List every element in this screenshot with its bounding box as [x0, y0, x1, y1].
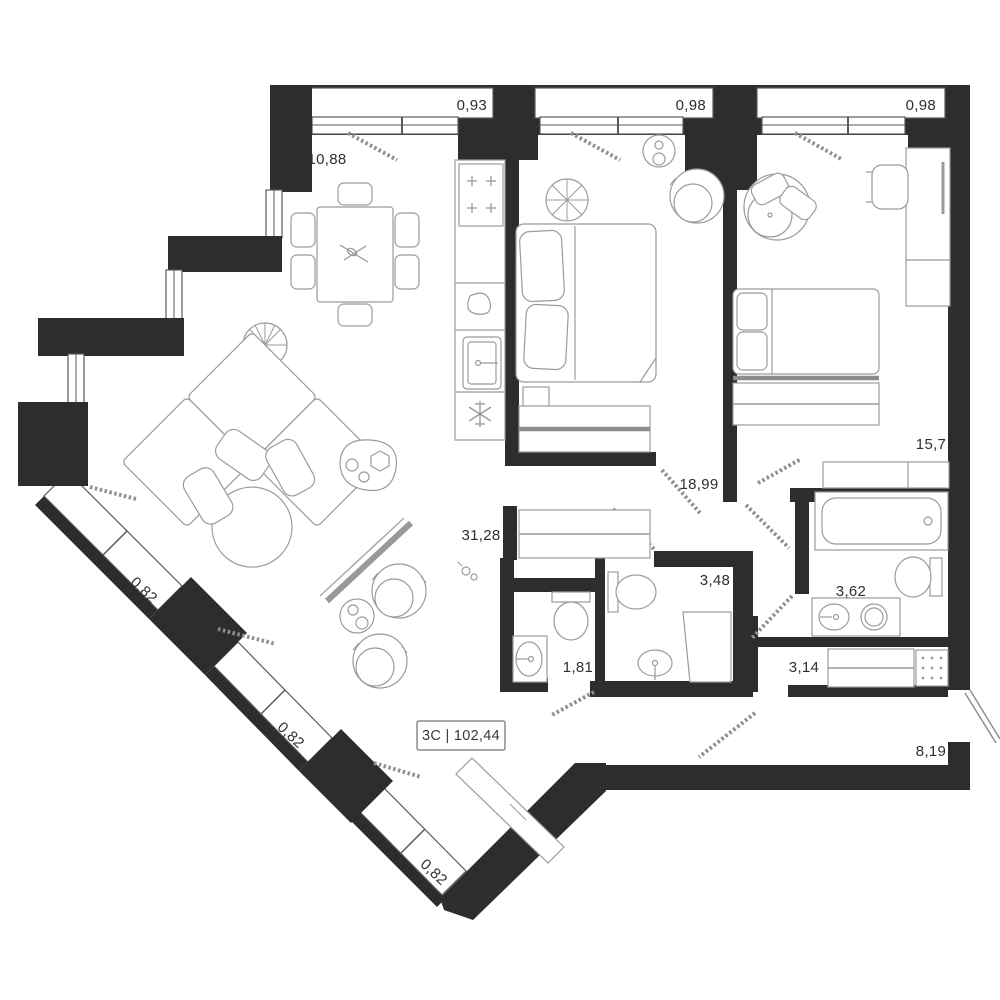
pillow — [523, 304, 568, 370]
window-top-2 — [540, 117, 683, 134]
desk-chair — [872, 165, 908, 209]
wall-pier — [458, 130, 538, 160]
side-table — [643, 135, 675, 167]
pillow — [737, 293, 767, 330]
shoe-cabinet — [916, 650, 948, 686]
wall-diagonal-v — [440, 763, 606, 920]
wall-bedroom1-bottom — [505, 452, 656, 466]
door-swing-bedroom2-b — [758, 459, 801, 483]
door-swing-balcony-top-mid — [571, 133, 620, 160]
desk — [866, 148, 950, 306]
balcony-label-top-left: 0,93 — [457, 97, 487, 114]
lounge-chair — [353, 634, 407, 688]
wall-bottom — [575, 765, 970, 790]
coffee-table — [340, 440, 396, 491]
wall-corner-block — [18, 402, 88, 486]
chair — [395, 213, 419, 247]
glasses-decor — [458, 562, 477, 580]
toilet — [895, 557, 942, 597]
door-swing-balcony-diag-1 — [90, 487, 136, 499]
double-sink — [812, 598, 900, 636]
pillow — [737, 332, 767, 370]
wall-wc-left — [500, 558, 514, 692]
chair — [291, 213, 315, 247]
wardrobe — [733, 383, 879, 425]
room-label-bath-large: 3,62 — [836, 583, 866, 600]
round-chair — [670, 169, 724, 223]
shower — [683, 612, 731, 682]
wall-wc-top — [513, 578, 600, 592]
entry-door — [965, 690, 1000, 743]
window-top-3 — [762, 117, 905, 134]
chair — [338, 183, 372, 205]
room-label-closet-room: 3,14 — [789, 659, 819, 676]
dining-table — [291, 183, 419, 326]
wall-bath-small-left — [595, 551, 605, 690]
kitchen-sink — [463, 337, 501, 389]
wall-closet-left — [740, 616, 758, 692]
furniture — [122, 135, 950, 688]
kitchen-counter — [455, 160, 505, 440]
window-left-1 — [266, 190, 282, 238]
toilet — [552, 592, 590, 640]
pillow — [519, 230, 565, 302]
door-swing-balcony-top-right — [795, 133, 843, 160]
stove-icon — [459, 164, 503, 226]
area-tag: 3С | 102,44 — [417, 721, 505, 750]
room-label-wc: 1,81 — [563, 659, 593, 676]
room-label-corridor: 18,99 — [679, 476, 718, 493]
wall-bath-large-bottom — [756, 637, 948, 647]
wardrobe — [828, 649, 914, 687]
plant-icon — [546, 179, 588, 221]
chair — [395, 255, 419, 289]
chair — [291, 255, 315, 289]
shaft — [823, 462, 949, 488]
bathtub — [815, 492, 948, 550]
wall-bath-large-left — [795, 502, 809, 594]
floor-plan: 10,88 31,28 18,99 15,7 3,48 3,62 1,81 3,… — [0, 0, 1000, 1000]
floor-plan-svg: 10,88 31,28 18,99 15,7 3,48 3,62 1,81 3,… — [0, 0, 1000, 1000]
room-label-bedroom-right: 15,7 — [916, 436, 946, 453]
wall-bath-small-bottom — [590, 681, 753, 697]
sink — [638, 650, 672, 680]
wall-right — [948, 118, 970, 690]
room-label-hallway: 8,19 — [916, 743, 946, 760]
room-label-dining-kitchen: 10,88 — [307, 151, 346, 168]
door-swing-closet-room — [699, 713, 755, 757]
lounge-chair — [372, 564, 426, 618]
sink — [513, 636, 547, 682]
balcony-label-top-right: 0,98 — [906, 97, 936, 114]
room-label-living: 31,28 — [461, 527, 500, 544]
window-left-2 — [166, 270, 182, 320]
area-tag-text: 3С | 102,44 — [422, 728, 500, 744]
door-swing-balcony-top-left — [348, 133, 397, 160]
wardrobe — [519, 510, 650, 558]
chair — [338, 304, 372, 326]
window-top-1 — [312, 117, 458, 134]
door-swing-bedroom2-a — [746, 505, 789, 548]
room-label-bath-small: 3,48 — [700, 572, 730, 589]
bed-single — [733, 289, 879, 374]
wall-bath-small-top — [654, 551, 738, 567]
door-swing-wc — [550, 692, 594, 716]
wall-wardrobe-cap — [503, 506, 517, 560]
wardrobe — [519, 406, 650, 452]
window-left-3 — [68, 354, 84, 404]
side-table — [340, 599, 374, 633]
toilet — [608, 572, 656, 612]
bed-double — [516, 224, 656, 382]
balcony-label-top-mid: 0,98 — [676, 97, 706, 114]
